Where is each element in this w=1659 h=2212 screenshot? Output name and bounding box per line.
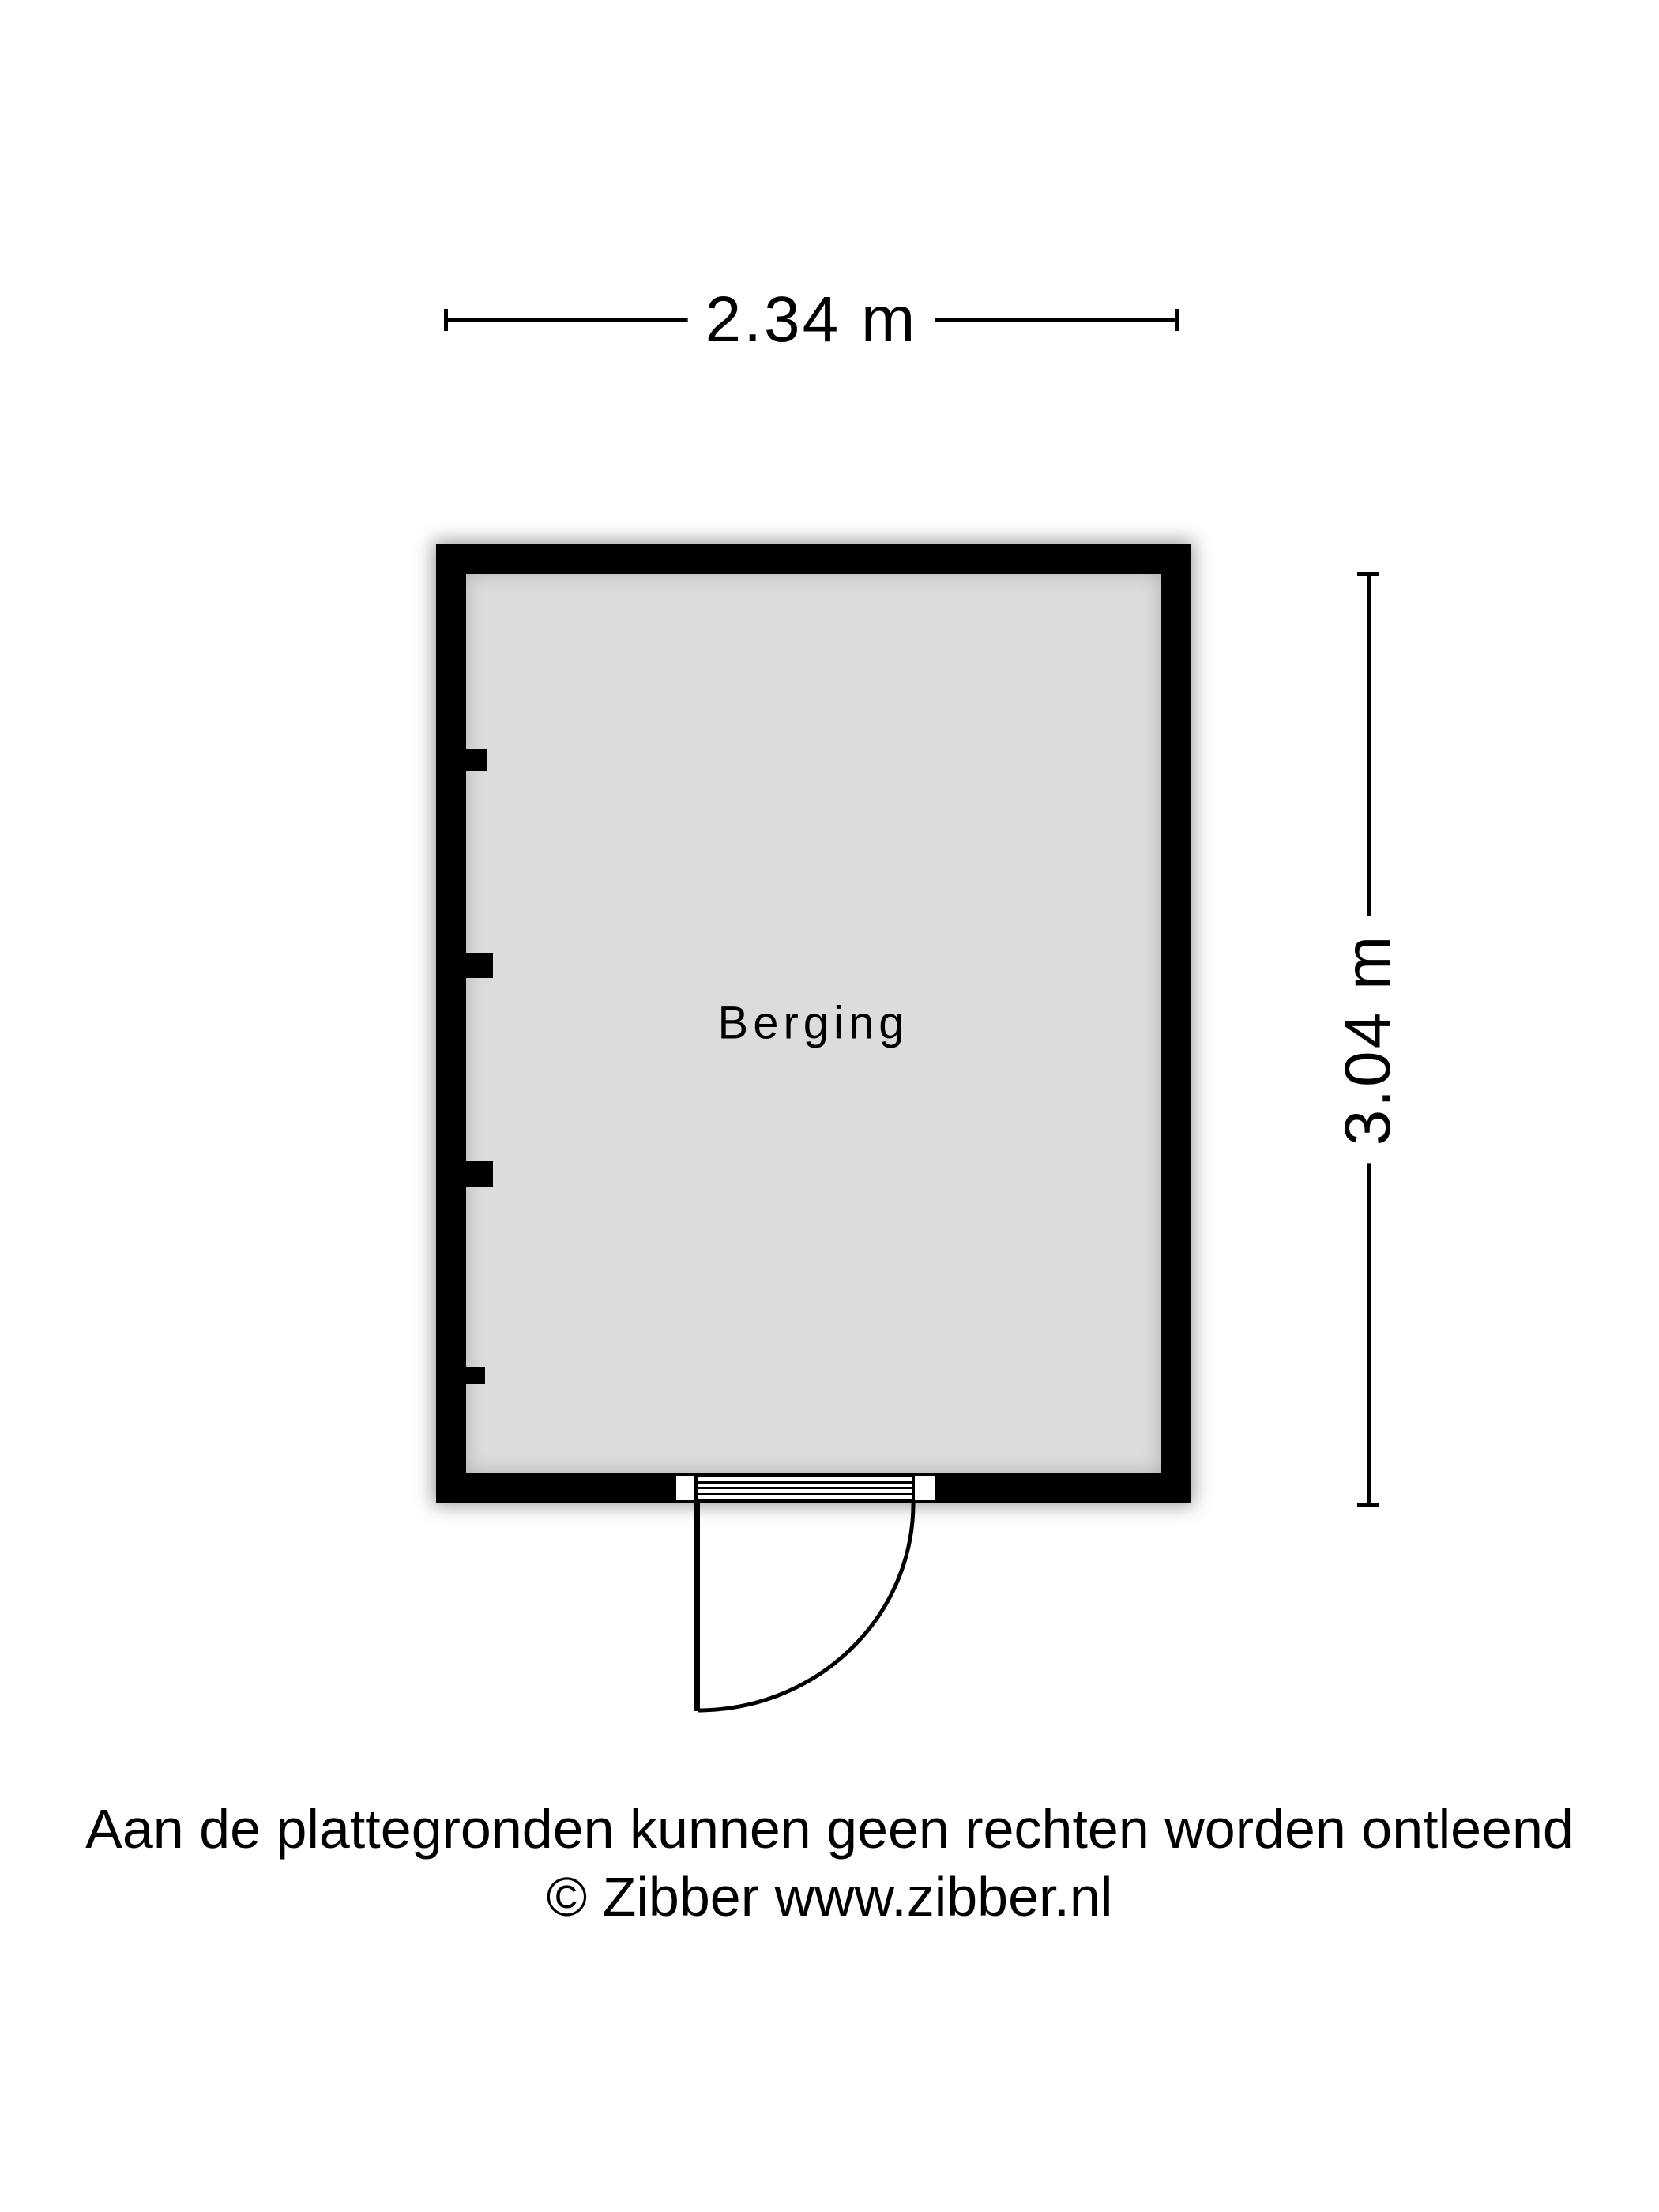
door-jamb-left [673,1473,698,1503]
door-jamb-right [912,1473,938,1503]
door-threshold-line [698,1493,912,1495]
dimension-height-tick-top [1357,572,1379,576]
dimension-width-tick-right [1175,309,1179,331]
room-label: Berging [718,997,909,1050]
wall-post [466,749,487,771]
door-leaf [694,1503,700,1711]
door-swing-arc [695,1501,920,1714]
dimension-width-tick-left [444,309,448,331]
floorplan-canvas: 2.34 m Berging 3.04 m Aan de plattegrond… [0,0,1659,2212]
room-berging: Berging [436,544,1191,1503]
dimension-width-label: 2.34 m [688,283,935,357]
dimension-height-label: 3.04 m [1331,916,1405,1164]
door-threshold-line [698,1481,912,1484]
wall-post [466,953,493,978]
dimension-height-tick-bottom [1357,1503,1379,1507]
dimension-width: 2.34 m [444,309,1179,331]
door-threshold-line [698,1487,912,1489]
dimension-height: 3.04 m [1357,572,1379,1507]
door-threshold [698,1474,912,1502]
footer-disclaimer: Aan de plattegronden kunnen geen rechten… [0,1795,1659,1863]
wall-post [466,1161,493,1187]
footer-copyright: © Zibber www.zibber.nl [0,1863,1659,1931]
wall-post [466,1367,485,1384]
footer: Aan de plattegronden kunnen geen rechten… [0,1795,1659,1931]
